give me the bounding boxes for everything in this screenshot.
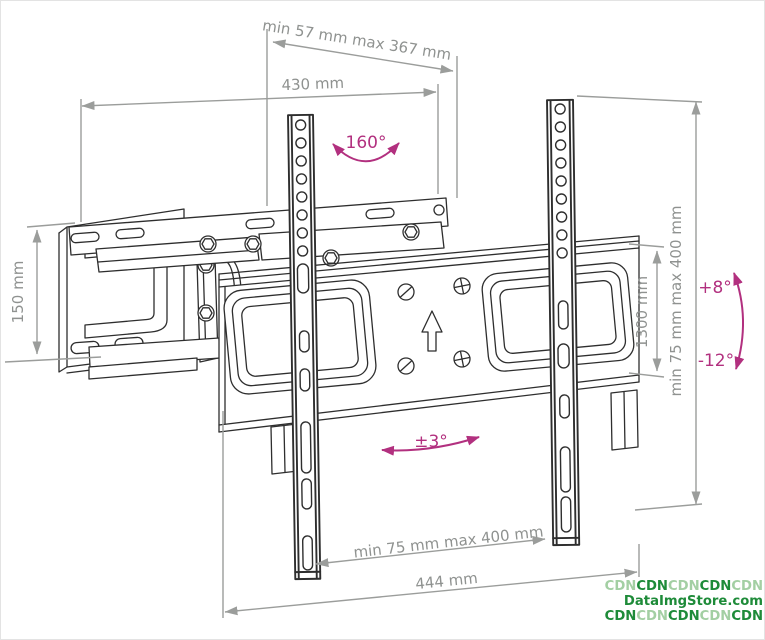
watermark-site-name: DataImgStore.com [624,594,763,609]
left-vesa-rail [288,115,320,579]
dim-rail-spacing-range-label: min 75 mm max 400 mm [353,522,545,561]
screw-icon [454,351,470,367]
angle-tilt-up-label: +8° [698,278,732,298]
angle-level: ±3° [382,432,479,452]
diagram-canvas: min 57 mm max 367 mm 430 mm 150 mm min 7… [0,0,765,640]
bolt-icon [403,224,419,240]
mount-drawing [59,100,639,579]
watermark: CDNCDNCDNCDNCDN DataImgStore.com CDNCDNC… [605,579,763,624]
right-vesa-rail [547,100,579,545]
screw-icon [398,358,414,374]
screw-icon [454,278,470,294]
dim-rail-spacing-range: min 75 mm max 400 mm [316,522,545,564]
dim-bottom-width-label: 444 mm [414,569,478,593]
screw-icon [398,284,414,300]
upper-arm [69,198,448,272]
angle-swivel: 160° [333,133,399,161]
watermark-line3: CDNCDNCDNCDNCDN [605,609,763,624]
dim-top-width-label: 430 mm [281,74,344,94]
angle-tilt: +8° -12° [698,273,743,371]
dim-plate-right-height-label: 1300 mm [633,276,651,348]
watermark-line1: CDNCDNCDNCDNCDN [605,579,763,594]
angle-swivel-label: 160° [346,133,387,153]
bolt-icon [245,236,261,252]
dim-extension-depth-label: min 57 mm max 367 mm [261,16,452,64]
elbow-pivot [434,205,444,215]
dim-wall-plate-height-label: 150 mm [9,261,27,324]
bolt-icon [198,305,214,321]
bolt-icon [200,236,216,252]
dim-right-height-range-label: min 75 mm max 400 mm [667,206,685,397]
angle-tilt-down-label: -12° [698,351,734,371]
